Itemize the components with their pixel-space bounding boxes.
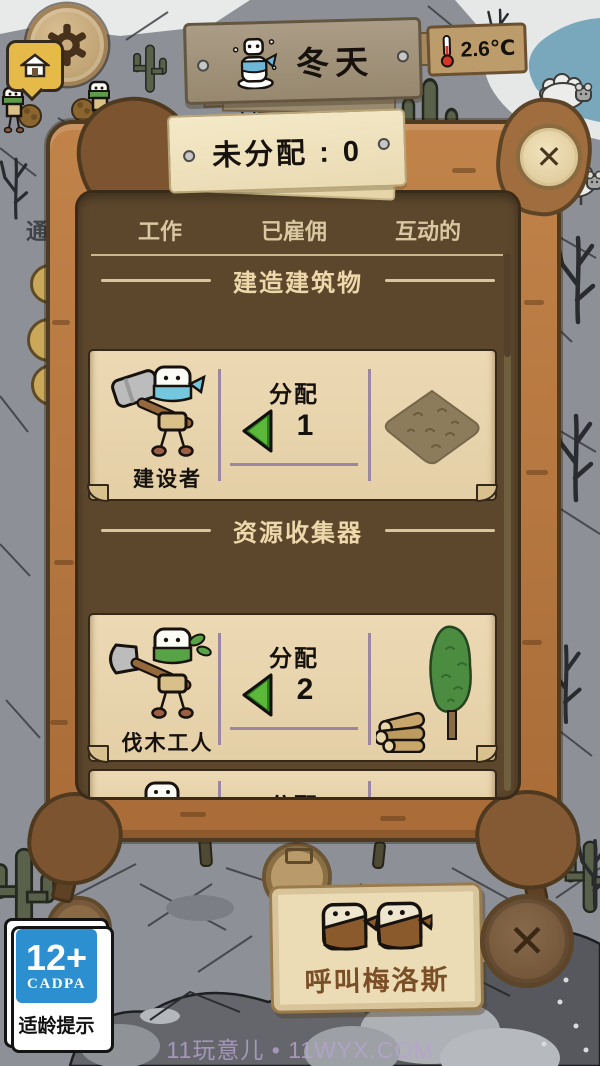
nail: [197, 59, 209, 71]
assign-label: 分配: [218, 787, 370, 800]
villagers-icon: [320, 898, 433, 956]
call-button-label: 呼叫梅洛斯: [304, 958, 450, 1000]
villager-head: [138, 777, 184, 800]
wood-grain: [526, 470, 548, 475]
call-melos-button[interactable]: 呼叫梅洛斯: [269, 882, 484, 1014]
worker-card-builder: 建设者 分配 1: [88, 349, 497, 501]
scrollbar-thumb[interactable]: [504, 253, 511, 357]
temperature-badge: 2.6℃: [426, 22, 528, 76]
unassigned-header: 未分配 : 0: [167, 108, 407, 193]
tab-work[interactable]: 工作: [115, 217, 205, 243]
cadpa-label: CADPA: [27, 976, 86, 993]
assigned-count-field[interactable]: 1: [275, 409, 335, 443]
close-icon: ✕: [536, 141, 563, 173]
parchment-curl: [476, 484, 498, 502]
house-icon: [20, 53, 50, 79]
decrease-assign-button[interactable]: [238, 671, 274, 717]
well-handle: [285, 848, 313, 864]
wood-grain: [50, 720, 68, 725]
panel-close-button[interactable]: ✕: [516, 124, 582, 190]
wood-stick: [373, 842, 386, 869]
wood-grain: [180, 812, 206, 817]
worker-name: 伐木工人: [90, 727, 245, 757]
wood-grain: [524, 300, 544, 305]
assign-label: 分配: [218, 375, 370, 409]
decrease-assign-button[interactable]: [238, 407, 274, 453]
lumberjack-character: [102, 623, 212, 727]
tab-hired[interactable]: 已雇佣: [246, 217, 342, 243]
tabs-divider: [91, 254, 503, 256]
background-sign-text: 通: [26, 214, 48, 246]
section-header-resources: 资源收集器: [78, 515, 518, 545]
ground-shadow: [166, 895, 234, 921]
divider-line: [385, 529, 495, 532]
panel-body: 工作 已雇佣 互动的 建造建筑物: [75, 190, 521, 800]
season-label: 冬天: [295, 35, 374, 85]
tab-interactive[interactable]: 互动的: [378, 217, 478, 243]
wood-grain: [52, 320, 70, 325]
count-underline: [230, 463, 358, 466]
snowman-villager-icon: [231, 35, 278, 90]
age-rating-badge: 12+ CADPA 适龄提示: [4, 918, 109, 1048]
game-screen: 通 冬天 2.6℃ 未分配: [0, 0, 600, 1066]
thermometer-icon: [438, 33, 455, 68]
unassigned-label: 未分配 : 0: [211, 128, 362, 175]
bottom-close-button[interactable]: ✕: [480, 894, 574, 988]
worker-card-lumberjack: 伐木工人 分配 2: [88, 613, 497, 762]
divider-line: [385, 279, 495, 282]
wood-grain: [452, 168, 476, 173]
worker-card-partial: 分配: [88, 769, 497, 800]
dirt-plot-icon: [380, 387, 484, 471]
age-rating-value: 12+: [26, 939, 87, 977]
tree-and-logs-icon: [376, 621, 488, 753]
nail: [183, 150, 195, 162]
count-underline: [230, 727, 358, 730]
close-icon: ✕: [508, 918, 547, 964]
nail: [397, 50, 409, 62]
divider-line: [101, 279, 211, 282]
section-title: 资源收集器: [233, 513, 363, 548]
temperature-value: 2.6℃: [460, 36, 515, 63]
age-rating-caption: 适龄提示: [7, 1011, 106, 1038]
assigned-count-field[interactable]: 2: [275, 673, 335, 707]
divider-line: [101, 529, 211, 532]
wood-grain: [54, 560, 74, 565]
age-rating-panel: 12+ CADPA: [16, 929, 97, 1003]
assign-label: 分配: [218, 639, 370, 673]
left-arrow-icon: [238, 407, 274, 453]
worker-name: 建设者: [90, 463, 245, 493]
season-sign: 冬天: [183, 17, 423, 105]
scrollbar[interactable]: [504, 253, 511, 791]
nail: [378, 138, 390, 150]
section-title: 建造建筑物: [233, 263, 363, 298]
home-indicator[interactable]: [6, 40, 64, 92]
wood-grain: [522, 640, 542, 645]
wood-grain: [380, 816, 406, 821]
section-header-buildings: 建造建筑物: [78, 265, 518, 295]
left-arrow-icon: [238, 671, 274, 717]
builder-character: [102, 359, 212, 463]
